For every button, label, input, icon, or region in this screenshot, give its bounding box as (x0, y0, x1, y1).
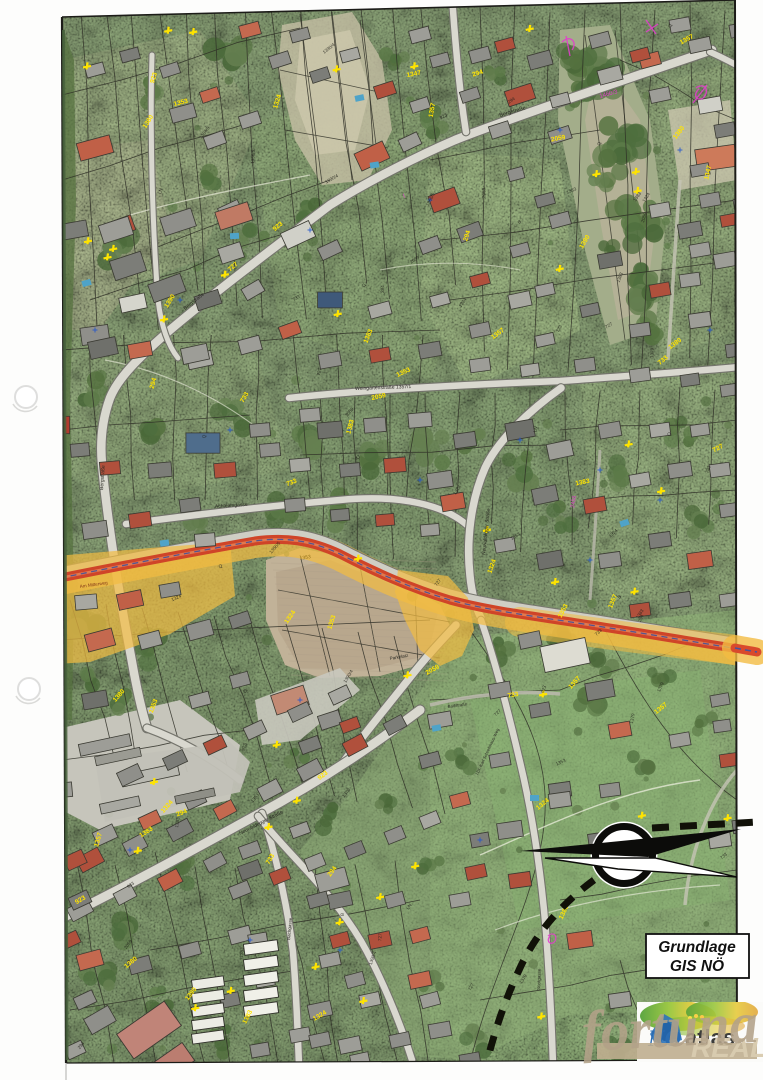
svg-text:Q: Q (243, 689, 248, 693)
svg-text:fortuna: fortuna (580, 990, 759, 1064)
svg-text:2059: 2059 (481, 187, 486, 198)
svg-text:Sootgasse: Sootgasse (536, 968, 542, 990)
svg-text:727: 727 (377, 933, 383, 942)
svg-text:Grundlage: Grundlage (658, 939, 736, 956)
svg-text:1356/5: 1356/5 (250, 149, 256, 164)
svg-text:GIS NÖ: GIS NÖ (670, 958, 724, 975)
svg-text:1379: 1379 (649, 347, 655, 358)
svg-text:294: 294 (380, 285, 385, 293)
